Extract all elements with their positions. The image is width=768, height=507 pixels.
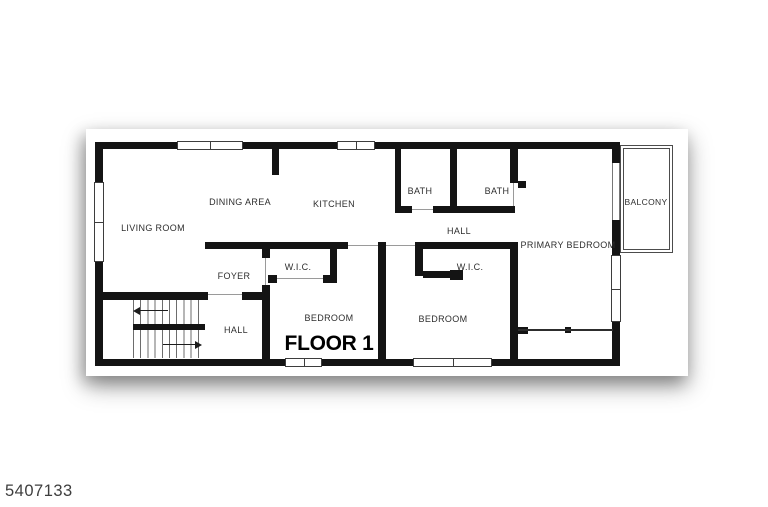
- floor-plan-image: LIVING ROOM DINING AREA KITCHEN BATH BAT…: [0, 0, 768, 507]
- wall-bottom-b: [322, 359, 413, 366]
- opening-hall-left: [348, 245, 378, 246]
- opening-bath1-door: [412, 209, 433, 210]
- wall-foyer-a: [95, 292, 208, 300]
- wall-primary-left: [510, 242, 518, 366]
- listing-id-watermark: 5407133: [5, 482, 73, 501]
- wall-left-a: [95, 142, 103, 182]
- window-top-living: [177, 141, 243, 150]
- room-label-primary-bedroom: PRIMARY BEDROOM: [521, 240, 616, 250]
- room-label-wic-1: W.I.C.: [285, 262, 312, 272]
- window-left-living: [94, 182, 104, 262]
- stairs-arrow-up-shaft: [140, 310, 168, 311]
- wall-top-b: [243, 142, 337, 149]
- room-label-wic-2: W.I.C.: [457, 262, 484, 272]
- wall-right-c: [612, 322, 620, 366]
- wall-top-a: [95, 142, 177, 149]
- wall-bedroom1-left-b: [262, 285, 270, 366]
- wall-bath2-jamb: [518, 181, 526, 188]
- wall-bath1-left: [395, 149, 401, 212]
- room-label-bedroom-2: BEDROOM: [419, 314, 468, 324]
- opening-hall-right: [386, 245, 415, 246]
- closet-line-primary: [518, 329, 613, 331]
- wall-right-a: [612, 142, 620, 163]
- window-bottom-bedroom2: [413, 358, 492, 367]
- wall-wic1-cap-right: [323, 275, 337, 283]
- wall-bath-divider: [450, 149, 457, 212]
- room-label-foyer: FOYER: [218, 271, 251, 281]
- room-label-bedroom-1: BEDROOM: [305, 313, 354, 323]
- window-right-primary: [611, 255, 621, 322]
- wall-kitchen-stub: [272, 142, 279, 175]
- opening-foyer-entry: [208, 294, 242, 295]
- wall-wic1-vertical: [330, 249, 337, 276]
- floor-title: FLOOR 1: [285, 332, 374, 356]
- stairs-arrow-up-icon: [133, 307, 140, 315]
- wall-top-c: [375, 142, 620, 149]
- opening-bedroom1-door: [265, 258, 266, 285]
- wall-wic1-cap-left: [268, 275, 277, 283]
- room-label-living-room: LIVING ROOM: [121, 223, 185, 233]
- window-top-kitchen: [337, 141, 375, 150]
- room-label-bath-1: BATH: [408, 186, 433, 196]
- room-label-hall-lower: HALL: [224, 325, 248, 335]
- room-label-dining-area: DINING AREA: [209, 197, 271, 207]
- wall-bath1-bottom-a: [395, 206, 412, 213]
- wall-bath2-right: [510, 149, 518, 183]
- room-label-kitchen: KITCHEN: [313, 199, 355, 209]
- room-label-balcony: BALCONY: [624, 197, 667, 207]
- room-label-hall-upper: HALL: [447, 226, 471, 236]
- balcony-door: [612, 163, 620, 220]
- wall-wic2-vertical: [415, 249, 423, 276]
- stairs-arrow-down-icon: [195, 341, 202, 349]
- room-label-bath-2: BATH: [485, 186, 510, 196]
- wall-mid-a: [205, 242, 348, 249]
- wall-left-b: [95, 262, 103, 366]
- stairs-mid-rail: [133, 324, 205, 330]
- wall-bath1-bottom-b: [433, 206, 457, 213]
- opening-bath2-door: [513, 183, 514, 206]
- window-bottom-bedroom1: [285, 358, 322, 367]
- stairs-arrow-down-shaft: [163, 344, 195, 345]
- wall-bath2-bottom: [457, 206, 515, 213]
- wall-mid-b: [415, 242, 518, 249]
- wall-bedroom1-left-a: [262, 249, 270, 258]
- wall-bottom-a: [95, 359, 285, 366]
- opening-wic1-door: [277, 278, 323, 279]
- wall-bedroom-divider: [378, 242, 386, 366]
